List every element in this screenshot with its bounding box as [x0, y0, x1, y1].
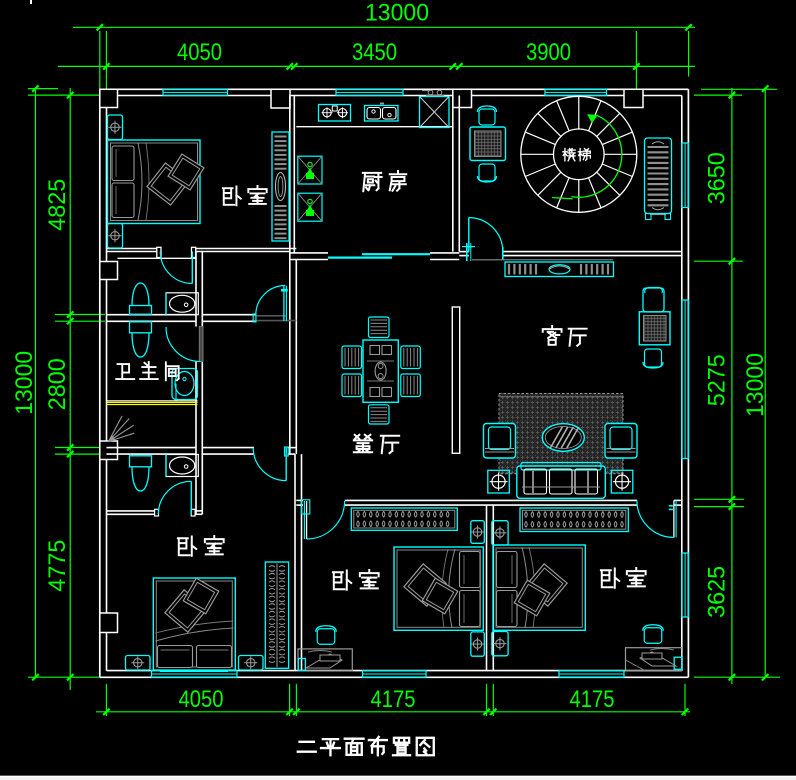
svg-text:13000: 13000: [742, 353, 769, 417]
svg-text:2800: 2800: [44, 358, 71, 410]
svg-text:5275: 5275: [703, 354, 730, 406]
svg-text:4775: 4775: [44, 540, 71, 592]
svg-text:4825: 4825: [44, 179, 71, 231]
svg-text:3650: 3650: [703, 152, 730, 204]
svg-text:13000: 13000: [365, 0, 429, 27]
svg-text:4175: 4175: [570, 686, 615, 713]
svg-text:4050: 4050: [177, 39, 222, 66]
svg-text:4050: 4050: [179, 686, 224, 713]
svg-text:3450: 3450: [352, 39, 397, 66]
svg-text:4175: 4175: [371, 686, 416, 713]
svg-text:3625: 3625: [703, 566, 730, 618]
svg-text:3900: 3900: [526, 39, 571, 66]
svg-text:13000: 13000: [11, 351, 38, 415]
